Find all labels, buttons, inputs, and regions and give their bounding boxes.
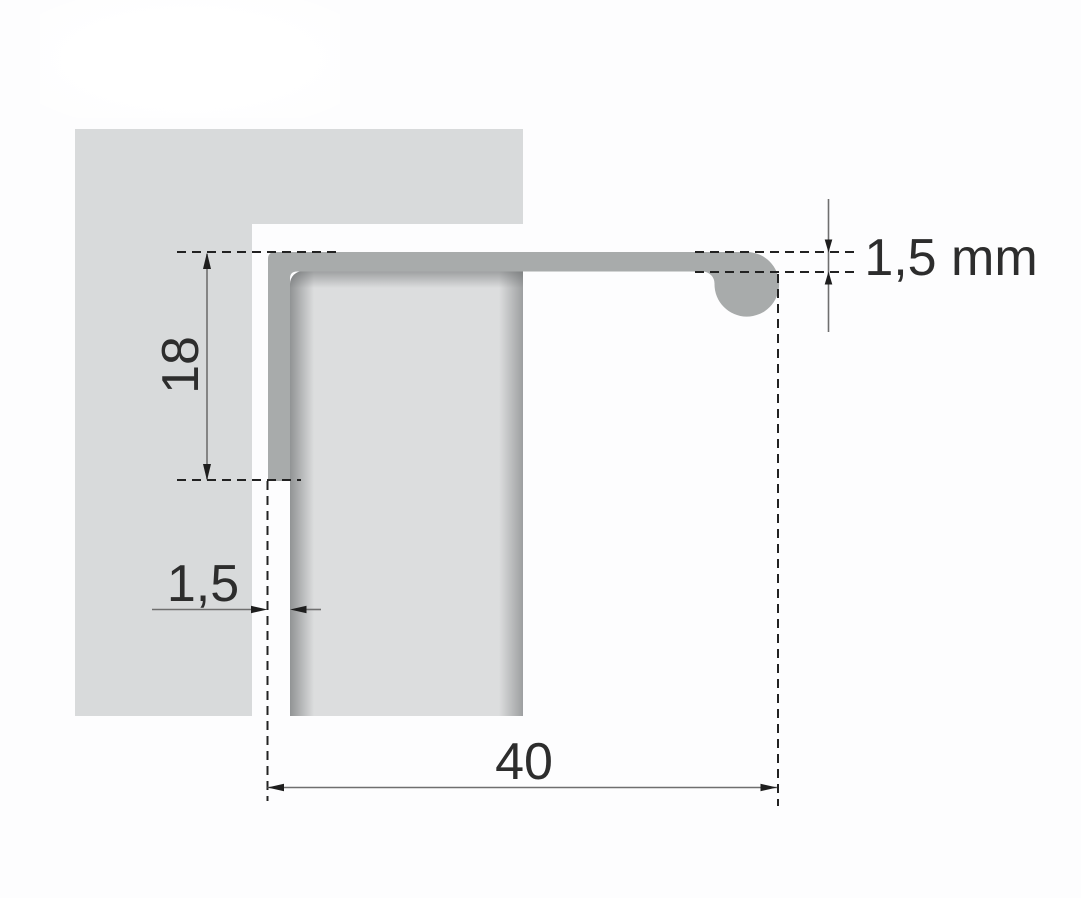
background-artifact <box>40 0 340 118</box>
technical-drawing-canvas: 18 1,5 40 1,5 mm <box>0 0 1081 898</box>
dimension-label-width: 40 <box>495 736 553 788</box>
dimension-label-material-thickness: 1,5 mm <box>864 232 1037 284</box>
dimension-material-thickness <box>825 199 833 332</box>
door-panel <box>290 271 523 716</box>
cabinet-panel-side <box>75 129 252 716</box>
dimension-label-height: 18 <box>155 336 207 394</box>
dimension-label-leg-thickness: 1,5 <box>167 558 239 610</box>
